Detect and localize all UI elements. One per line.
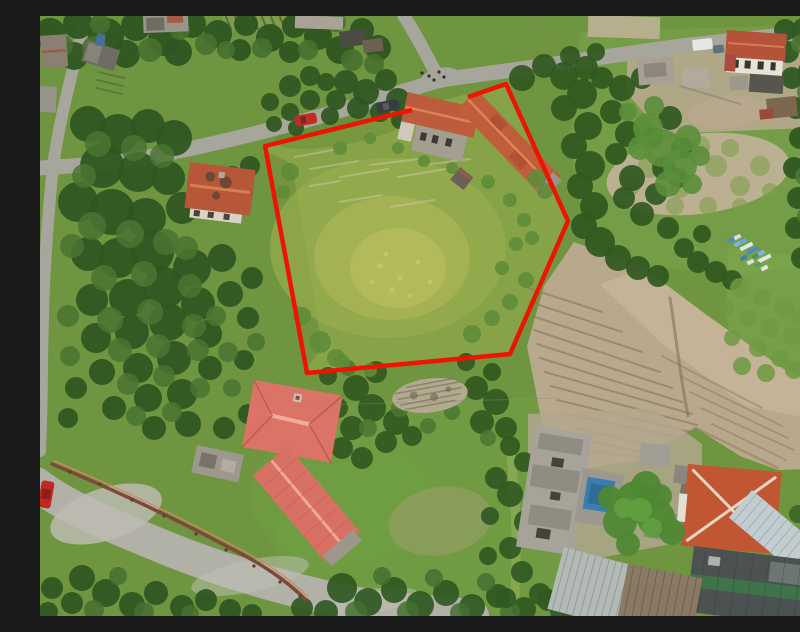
annex-dark — [749, 74, 784, 94]
scene-svg — [40, 16, 800, 616]
white-van-topright — [692, 38, 713, 51]
grey-car-topright — [713, 44, 725, 53]
aerial-photo — [40, 16, 800, 616]
blue-car-west-road — [95, 33, 106, 46]
house-top-center-left — [143, 16, 189, 33]
roof — [40, 86, 57, 113]
roof-red-bit — [167, 16, 183, 23]
red-box — [759, 108, 774, 119]
roof-dark — [146, 17, 164, 31]
ruin-b — [682, 67, 710, 89]
ruin-a-inner — [643, 62, 666, 78]
chimney — [218, 172, 225, 179]
white-vent — [708, 556, 721, 566]
meadow-glow-3 — [350, 228, 446, 308]
dirt-top-small — [588, 16, 661, 39]
van-body — [692, 38, 713, 51]
balcony — [724, 54, 736, 72]
chimney-flue — [295, 396, 300, 401]
ruin-c — [729, 75, 748, 91]
house-topleft-b — [40, 86, 57, 113]
house-topleft-a — [40, 34, 68, 68]
car-roof — [41, 488, 52, 499]
